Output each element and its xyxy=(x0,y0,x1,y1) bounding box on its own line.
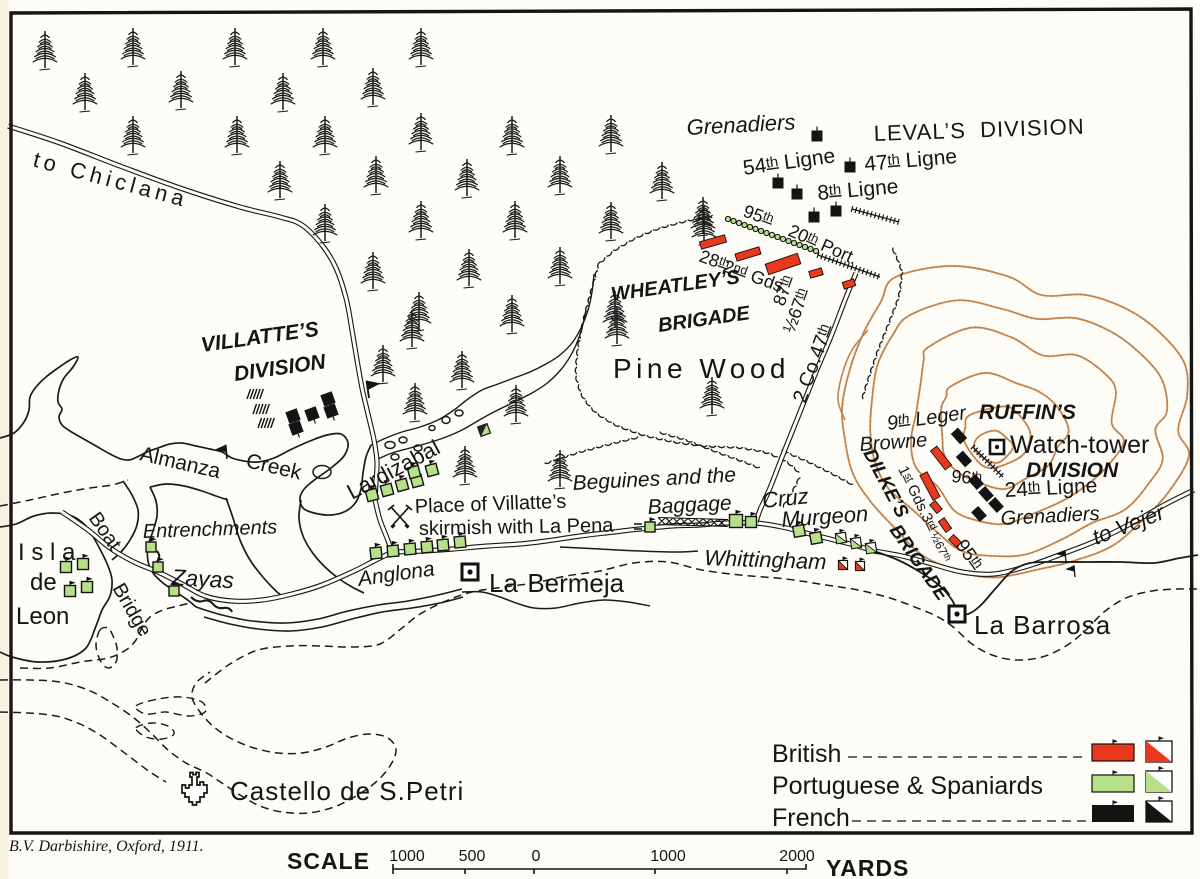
svg-text:500: 500 xyxy=(459,848,486,865)
svg-text:Leon: Leon xyxy=(16,603,69,630)
svg-text:I s l a: I s l a xyxy=(18,539,76,566)
svg-text:British: British xyxy=(772,740,841,768)
svg-text:Castello de S.Petri: Castello de S.Petri xyxy=(230,776,464,806)
svg-text:24th Ligne: 24th Ligne xyxy=(1004,474,1098,502)
svg-text:Watch-tower: Watch-tower xyxy=(1010,431,1149,459)
svg-text:Cruz: Cruz xyxy=(761,483,810,513)
svg-text:Portuguese & Spaniards: Portuguese & Spaniards xyxy=(772,772,1043,800)
svg-text:Pine Wood: Pine Wood xyxy=(613,353,790,384)
svg-text:Entrenchments: Entrenchments xyxy=(142,516,277,543)
svg-text:French: French xyxy=(772,804,850,832)
svg-text:YARDS: YARDS xyxy=(826,855,909,879)
svg-text:2000: 2000 xyxy=(779,848,815,865)
svg-text:de: de xyxy=(30,569,57,596)
svg-text:1000: 1000 xyxy=(650,848,686,865)
svg-text:RUFFIN’S: RUFFIN’S xyxy=(979,401,1076,424)
svg-text:La Bermeja: La Bermeja xyxy=(489,568,625,598)
svg-text:La Barrosa: La Barrosa xyxy=(974,610,1111,640)
svg-text:B.V. Darbishire, Oxford, 1911.: B.V. Darbishire, Oxford, 1911. xyxy=(9,838,204,855)
svg-text:skirmish with La Pena: skirmish with La Pena xyxy=(419,515,615,540)
svg-text:Whittingham: Whittingham xyxy=(704,545,827,574)
svg-text:0: 0 xyxy=(532,848,541,865)
svg-text:Baggage: Baggage xyxy=(647,492,732,519)
svg-text:SCALE: SCALE xyxy=(287,848,370,874)
svg-text:Zayas: Zayas xyxy=(170,564,235,593)
svg-text:1000: 1000 xyxy=(389,848,425,865)
